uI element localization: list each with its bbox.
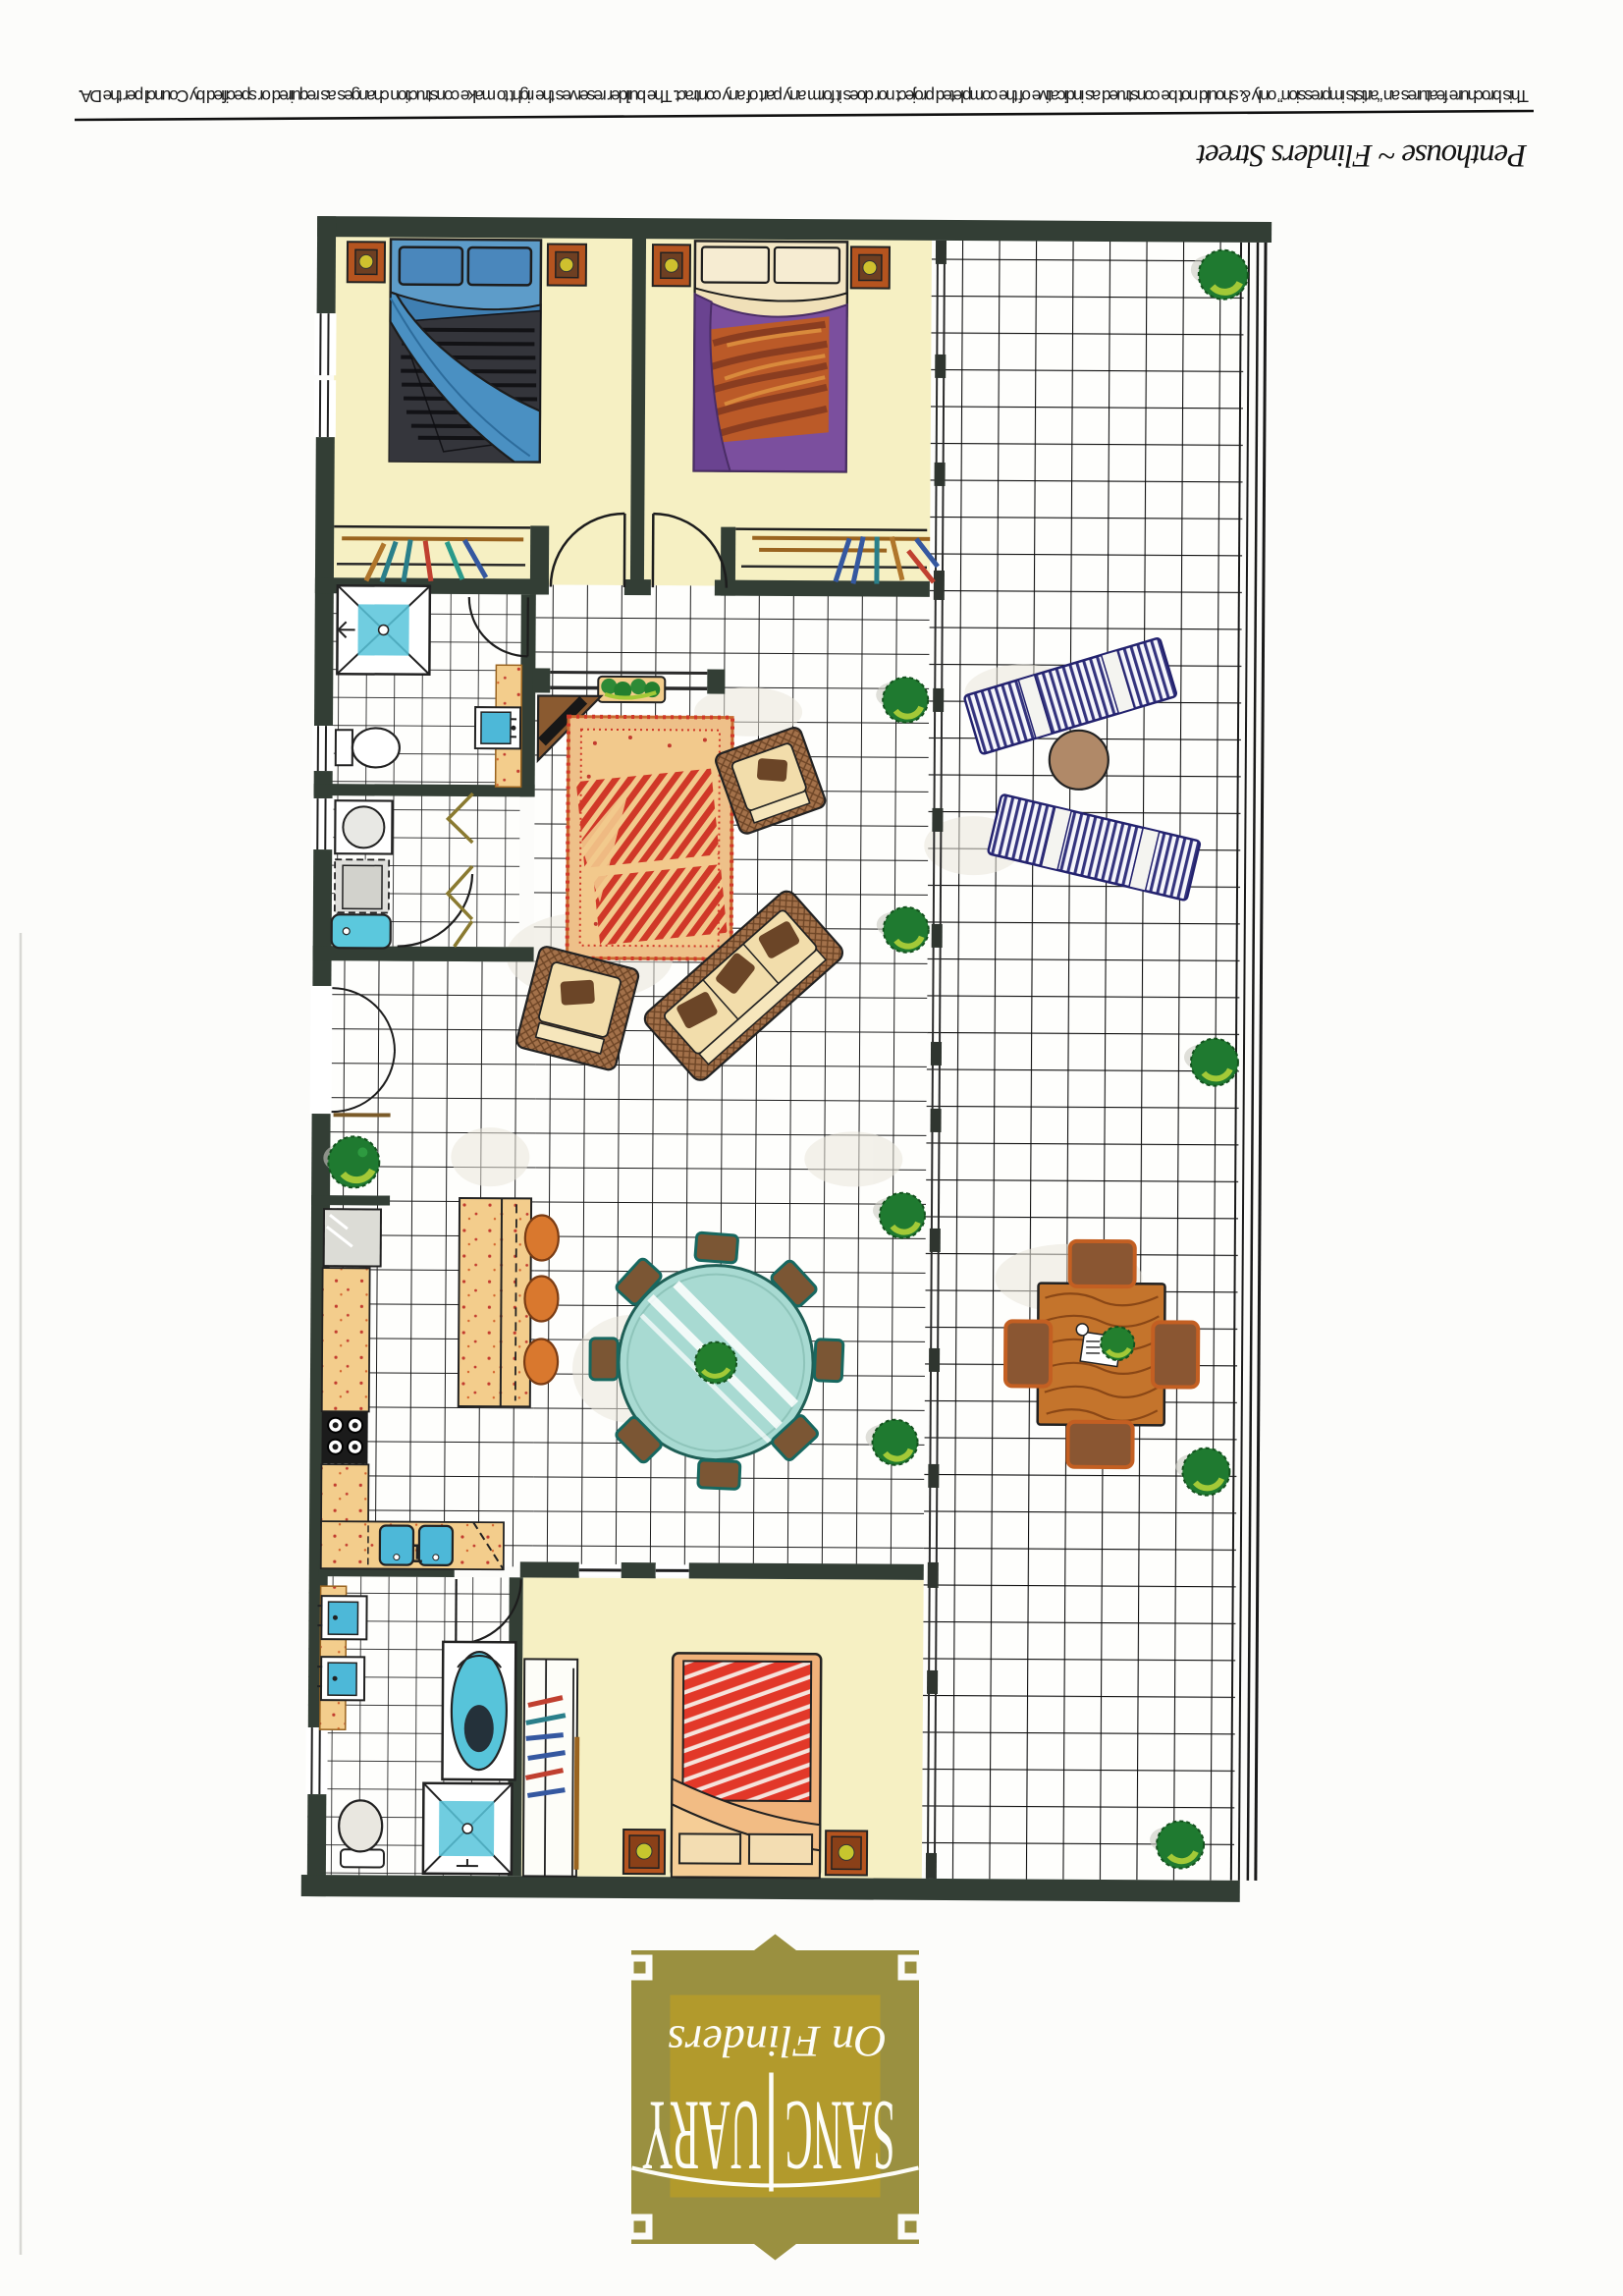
- svg-text:UARY: UARY: [642, 2080, 762, 2192]
- svg-text:On Flinders: On Flinders: [668, 2017, 888, 2067]
- svg-text:Penthouse ~ Flinders Street: Penthouse ~ Flinders Street: [1196, 137, 1528, 173]
- svg-text:SANC: SANC: [785, 2080, 895, 2192]
- svg-text:This brochure features an “art: This brochure features an “artists impre…: [78, 86, 1529, 106]
